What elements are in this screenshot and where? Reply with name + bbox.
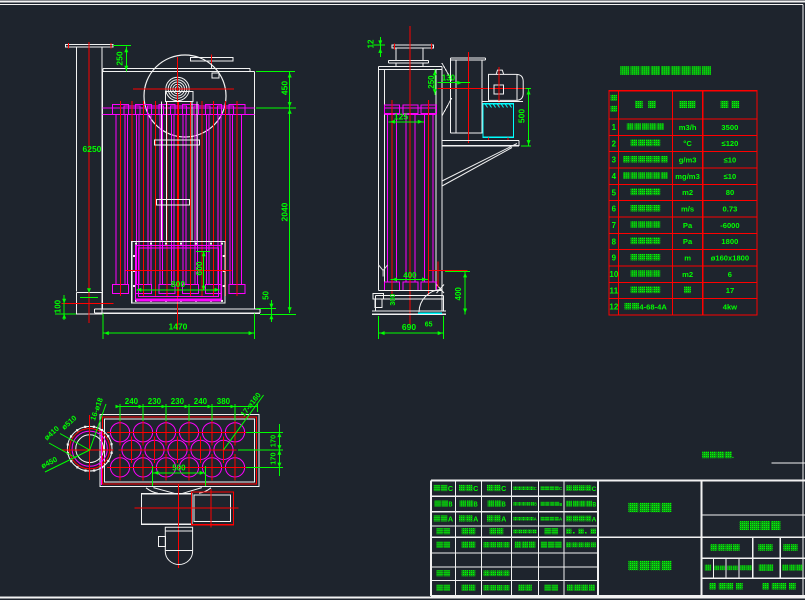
svg-text:Pa: Pa xyxy=(683,221,693,230)
svg-text:100: 100 xyxy=(53,299,62,313)
svg-text:9: 9 xyxy=(612,254,617,263)
svg-text:300: 300 xyxy=(390,294,397,306)
svg-text:B: B xyxy=(560,502,563,508)
svg-text:11: 11 xyxy=(609,286,618,295)
svg-text:C: C xyxy=(501,484,506,493)
svg-text:≤120: ≤120 xyxy=(722,139,739,148)
svg-text:mg/m3: mg/m3 xyxy=(675,172,700,181)
svg-text:1470: 1470 xyxy=(169,322,188,332)
svg-text:2: 2 xyxy=(612,139,617,148)
svg-text:≤10: ≤10 xyxy=(724,172,737,181)
svg-text:1800: 1800 xyxy=(721,237,738,246)
svg-text:80: 80 xyxy=(726,188,735,197)
svg-text:125: 125 xyxy=(394,112,408,122)
svg-text:600: 600 xyxy=(194,261,204,275)
svg-text:C: C xyxy=(473,484,478,493)
svg-text:B: B xyxy=(502,500,506,509)
svg-text:A: A xyxy=(501,515,506,524)
svg-text:A: A xyxy=(592,516,597,523)
svg-text:6: 6 xyxy=(728,270,732,279)
svg-text:50: 50 xyxy=(261,290,270,299)
svg-text:m3/h: m3/h xyxy=(679,123,697,132)
svg-text:m/s: m/s xyxy=(681,205,694,214)
svg-text:0.73: 0.73 xyxy=(723,205,738,214)
svg-text:7: 7 xyxy=(612,221,617,230)
svg-text:ø160x1800: ø160x1800 xyxy=(711,254,749,263)
svg-text:400: 400 xyxy=(454,287,463,301)
svg-text:400: 400 xyxy=(403,271,417,280)
svg-text:6: 6 xyxy=(612,205,617,214)
svg-text:500: 500 xyxy=(172,463,186,472)
svg-text:690: 690 xyxy=(402,322,416,332)
svg-text:450: 450 xyxy=(280,81,290,95)
svg-text:3: 3 xyxy=(612,156,617,165)
svg-text:A: A xyxy=(534,516,537,521)
svg-text:3500: 3500 xyxy=(721,123,738,132)
svg-text:m2: m2 xyxy=(682,270,693,279)
svg-text:500: 500 xyxy=(517,109,527,123)
svg-text:4kw: 4kw xyxy=(723,303,737,312)
svg-text:240: 240 xyxy=(194,397,208,406)
svg-text:17: 17 xyxy=(726,286,735,295)
svg-text:≤10: ≤10 xyxy=(724,156,737,165)
svg-text:12: 12 xyxy=(609,303,618,312)
svg-text:C: C xyxy=(534,486,537,491)
svg-text:4-68-4A: 4-68-4A xyxy=(639,303,667,312)
svg-text:250: 250 xyxy=(115,51,125,65)
svg-text:10: 10 xyxy=(609,270,618,279)
svg-text:250: 250 xyxy=(427,75,436,89)
svg-text:230: 230 xyxy=(171,397,185,406)
svg-text:g/m3: g/m3 xyxy=(679,156,697,165)
svg-text:m: m xyxy=(684,254,691,263)
svg-text:Pa: Pa xyxy=(683,237,693,246)
svg-text:240: 240 xyxy=(125,397,139,406)
svg-text:B: B xyxy=(534,502,536,507)
svg-text:.: . xyxy=(732,451,734,460)
svg-text:800: 800 xyxy=(171,279,185,289)
svg-text:B: B xyxy=(474,500,478,509)
svg-text:12: 12 xyxy=(366,39,375,48)
svg-text:B: B xyxy=(448,500,452,509)
svg-text:1: 1 xyxy=(612,123,617,132)
svg-text:5: 5 xyxy=(612,188,617,197)
svg-text:4: 4 xyxy=(612,172,617,181)
svg-text:6250: 6250 xyxy=(83,144,102,154)
svg-text:m2: m2 xyxy=(682,188,693,197)
svg-text:380: 380 xyxy=(217,397,231,406)
svg-text:170: 170 xyxy=(269,452,278,465)
svg-text:B: B xyxy=(593,502,597,509)
svg-text:65: 65 xyxy=(425,322,433,329)
svg-text:A: A xyxy=(473,515,478,524)
svg-text:170: 170 xyxy=(269,435,278,448)
svg-text:130: 130 xyxy=(442,73,456,82)
svg-text:C: C xyxy=(448,484,453,493)
svg-text:230: 230 xyxy=(148,397,162,406)
svg-text:°C: °C xyxy=(683,139,692,148)
svg-text:8: 8 xyxy=(612,237,617,246)
svg-text:2040: 2040 xyxy=(280,202,290,221)
svg-text:A: A xyxy=(448,515,453,524)
svg-text:C: C xyxy=(592,486,597,493)
svg-text:-6000: -6000 xyxy=(720,221,739,230)
